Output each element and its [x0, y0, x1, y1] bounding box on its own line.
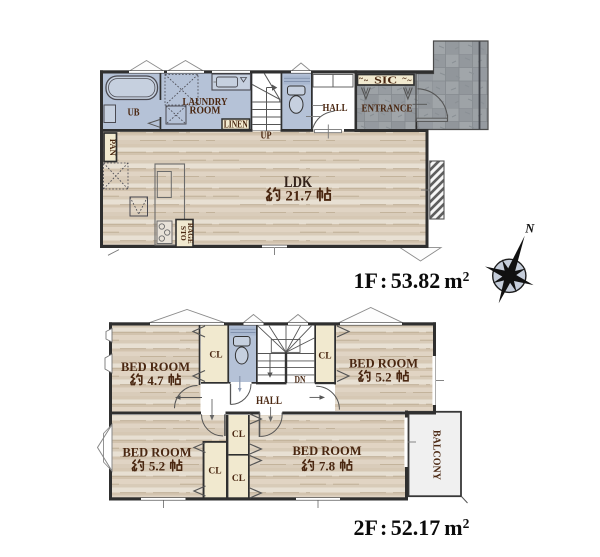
svg-text:LINEN: LINEN [224, 120, 249, 131]
svg-text:7.8: 7.8 [319, 459, 336, 474]
svg-text:BED ROOM: BED ROOM [122, 446, 191, 460]
svg-text:BED ROOM: BED ROOM [349, 356, 418, 370]
svg-text:1F:53.82m2: 1F:53.82m2 [354, 268, 470, 293]
svg-text:DN: DN [295, 375, 306, 385]
svg-text:BED ROOM: BED ROOM [292, 444, 361, 458]
svg-text:UP: UP [261, 131, 272, 142]
svg-text:2F:52.17m2: 2F:52.17m2 [354, 515, 470, 540]
svg-text:BED ROOM: BED ROOM [121, 360, 190, 374]
svg-text:21.7: 21.7 [285, 189, 312, 205]
svg-text:CL: CL [232, 474, 245, 484]
svg-text:5.2: 5.2 [149, 459, 165, 474]
svg-text:CL: CL [209, 351, 222, 361]
svg-text:ENTRANCE: ENTRANCE [362, 103, 413, 114]
svg-text:N: N [524, 222, 535, 236]
svg-text:SIC: SIC [374, 75, 397, 87]
svg-text:RAGE: RAGE [186, 223, 194, 244]
svg-text:CL: CL [318, 352, 331, 362]
svg-text:4.7: 4.7 [147, 373, 164, 388]
svg-text:HALL: HALL [256, 393, 282, 407]
svg-text:HALL: HALL [323, 102, 348, 114]
svg-text:ROOM: ROOM [190, 105, 222, 117]
svg-text:BALCONY: BALCONY [431, 430, 442, 481]
svg-text:5.2: 5.2 [375, 369, 391, 384]
svg-text:CL: CL [208, 467, 221, 477]
svg-text:CL: CL [232, 430, 245, 440]
svg-text:PAN: PAN [108, 139, 118, 157]
svg-text:UB: UB [128, 107, 141, 119]
